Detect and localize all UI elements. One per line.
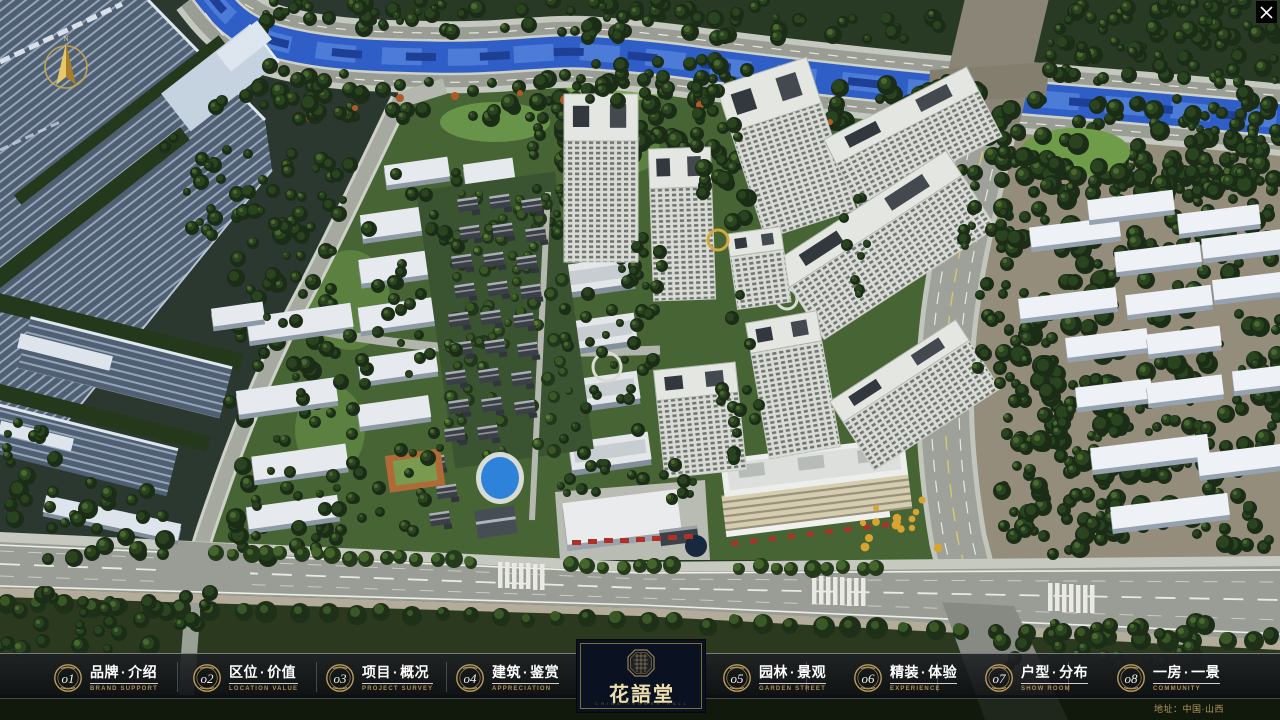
svg-text:o5: o5 <box>731 671 745 686</box>
svg-text:N: N <box>63 35 68 43</box>
svg-text:o7: o7 <box>993 671 1007 686</box>
svg-text:o3: o3 <box>334 671 348 686</box>
svg-text:o4: o4 <box>464 671 478 686</box>
svg-text:o1: o1 <box>62 671 75 686</box>
svg-text:o2: o2 <box>201 671 215 686</box>
svg-text:o8: o8 <box>1125 671 1139 686</box>
svg-text:o6: o6 <box>862 671 876 686</box>
